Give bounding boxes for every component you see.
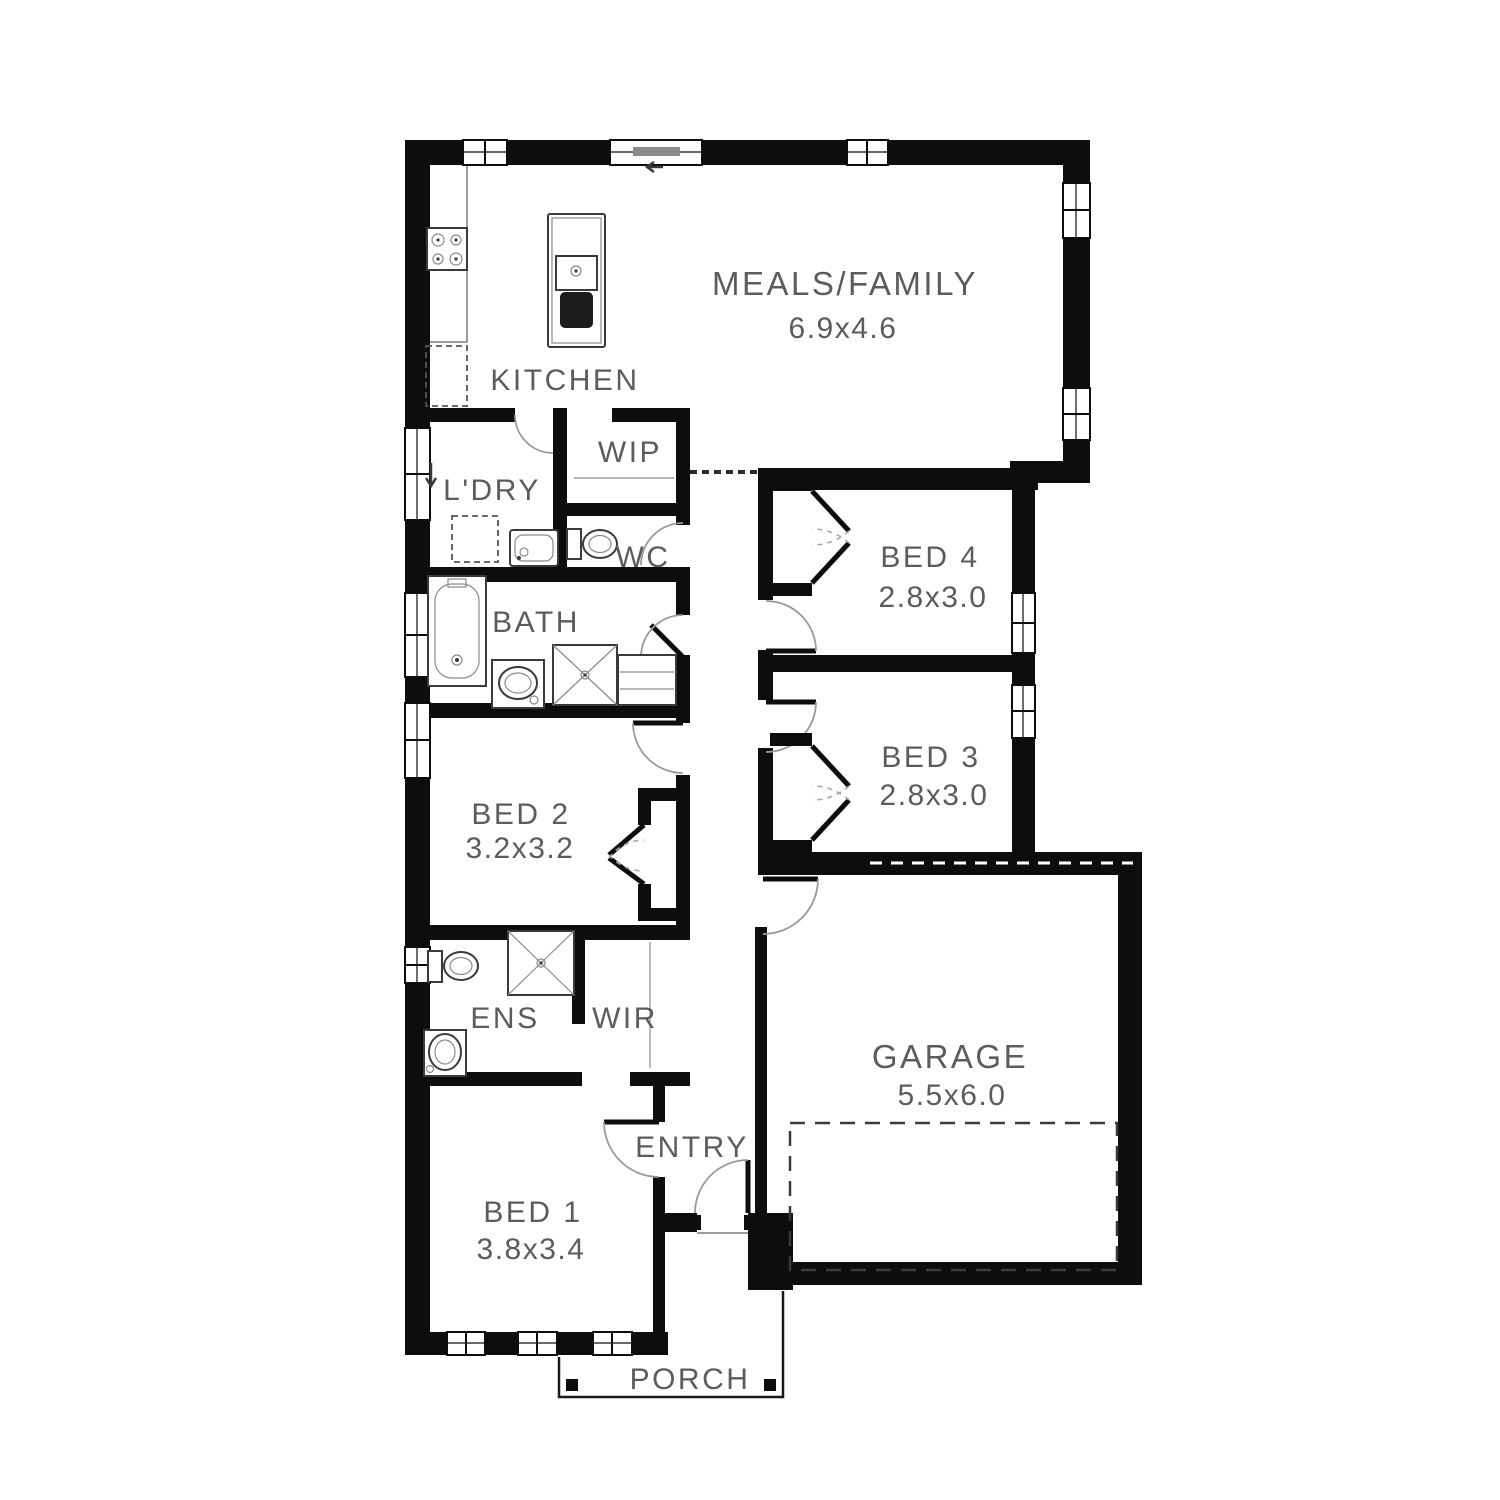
garage-door-zone-dashed bbox=[790, 1123, 1117, 1270]
laundry-door-left bbox=[405, 428, 430, 520]
room-label-meals-family: MEALS/FAMILY bbox=[712, 265, 978, 302]
room-label-wip: WIP bbox=[598, 436, 662, 469]
basin-ens bbox=[424, 1030, 466, 1076]
ldry-door-arc bbox=[515, 415, 553, 453]
toilet-ens bbox=[428, 951, 478, 982]
sink-basin bbox=[560, 292, 593, 328]
wall-wip-wc-divider bbox=[553, 503, 678, 516]
wall-wip-top bbox=[612, 408, 678, 422]
room-label-ens: ENS bbox=[470, 1002, 539, 1035]
laundry-fixtures bbox=[452, 516, 558, 566]
wall-hall-west-c bbox=[676, 582, 690, 615]
window-bed1-bottom-1 bbox=[447, 1332, 485, 1355]
garage-internal-door bbox=[763, 879, 818, 934]
room-label-garage: GARAGE bbox=[872, 1038, 1028, 1075]
basin-bath bbox=[492, 660, 544, 708]
wc-fixtures bbox=[567, 529, 617, 559]
room-dims-bed3: 2.8x3.0 bbox=[880, 779, 989, 812]
wall-bed4-bed3-divider bbox=[758, 655, 1035, 672]
robe-bed4 bbox=[770, 478, 849, 596]
porch-post-right bbox=[764, 1379, 776, 1391]
window-bath-left bbox=[405, 593, 430, 677]
room-dims-bed1: 3.8x3.4 bbox=[477, 1233, 586, 1266]
wall-hall-west-d bbox=[676, 703, 690, 723]
front-door-jamb-left bbox=[695, 1215, 701, 1230]
window-bed2-left bbox=[405, 703, 430, 778]
window-bed3-right bbox=[1012, 685, 1035, 738]
wall-hall-west-a bbox=[676, 408, 690, 478]
window-bed1-bottom-2 bbox=[518, 1332, 557, 1355]
bath-door bbox=[641, 615, 683, 657]
room-dims-garage: 5.5x6.0 bbox=[898, 1079, 1007, 1112]
wall-garage-right bbox=[1118, 852, 1142, 1285]
window-meals-right-lower bbox=[1063, 388, 1090, 440]
laundry-tub bbox=[510, 530, 558, 566]
slider-panel bbox=[633, 147, 680, 156]
bath-fixtures bbox=[428, 576, 676, 708]
porch-post-left bbox=[566, 1379, 578, 1391]
bathtub bbox=[428, 576, 486, 686]
room-label-bed4: BED 4 bbox=[880, 541, 979, 574]
wall-entry-front bbox=[665, 1213, 697, 1232]
floor-plan-page: { "plan": { "title": "House floor plan",… bbox=[0, 0, 1500, 1500]
wall-garage-bottom bbox=[760, 1262, 1142, 1285]
front-door-jamb-right bbox=[744, 1215, 750, 1230]
toilet-wc bbox=[567, 529, 617, 559]
room-label-bath: BATH bbox=[492, 606, 580, 639]
room-label-bed3: BED 3 bbox=[881, 741, 980, 774]
exterior-walls bbox=[405, 140, 1142, 1355]
cooktop bbox=[427, 228, 467, 270]
room-label-wir: WIR bbox=[592, 1002, 658, 1035]
window-meals-top bbox=[847, 140, 888, 165]
wall-garage-left-corner bbox=[748, 1213, 793, 1290]
linen-cupboard bbox=[618, 655, 676, 705]
room-dims-bed4: 2.8x3.0 bbox=[879, 581, 988, 614]
room-label-bed2: BED 2 bbox=[471, 798, 570, 831]
window-bed4-right bbox=[1012, 593, 1035, 653]
wall-hall-west-b bbox=[676, 478, 690, 525]
washing-machine-space bbox=[452, 516, 498, 562]
room-label-kitchen: KITCHEN bbox=[490, 364, 639, 397]
fridge-space bbox=[426, 346, 467, 406]
window-ens-left bbox=[405, 947, 430, 983]
wall-ldry-top bbox=[418, 408, 515, 422]
room-label-entry: ENTRY bbox=[635, 1131, 749, 1164]
room-dims-meals-family: 6.9x4.6 bbox=[789, 312, 898, 345]
shower-bath bbox=[553, 645, 617, 705]
robe-bed3 bbox=[770, 733, 849, 853]
room-label-wc: WC bbox=[616, 541, 671, 574]
front-entry-door bbox=[695, 1160, 748, 1233]
window-bed1-bottom-3 bbox=[593, 1332, 632, 1355]
sliding-door-meals-top bbox=[610, 140, 702, 165]
window-kitchen-top bbox=[463, 140, 507, 165]
room-label-bed1: BED 1 bbox=[483, 1196, 582, 1229]
kitchen-island bbox=[548, 214, 605, 347]
room-label-ldry: L'DRY bbox=[443, 474, 541, 507]
floor-plan: MEALS/FAMILY 6.9x4.6 KITCHEN WIP L'DRY W… bbox=[0, 0, 1500, 1500]
shower-ens bbox=[508, 931, 574, 995]
room-labels: MEALS/FAMILY 6.9x4.6 KITCHEN WIP L'DRY W… bbox=[443, 265, 1028, 1396]
bed4-door bbox=[766, 601, 816, 651]
bed2-door bbox=[633, 723, 683, 773]
wall-bed1-right bbox=[653, 1177, 665, 1332]
room-label-porch: PORCH bbox=[630, 1363, 751, 1396]
wall-hall-west-linen bbox=[676, 655, 690, 703]
wall-wir-bottom bbox=[630, 1072, 690, 1086]
window-meals-right-upper bbox=[1063, 183, 1090, 238]
room-dims-bed2: 3.2x3.2 bbox=[466, 832, 575, 865]
wall-garage-left bbox=[755, 927, 767, 1215]
wall-bed1-right-top bbox=[653, 1086, 665, 1122]
wall-hall-east-c bbox=[758, 748, 773, 852]
